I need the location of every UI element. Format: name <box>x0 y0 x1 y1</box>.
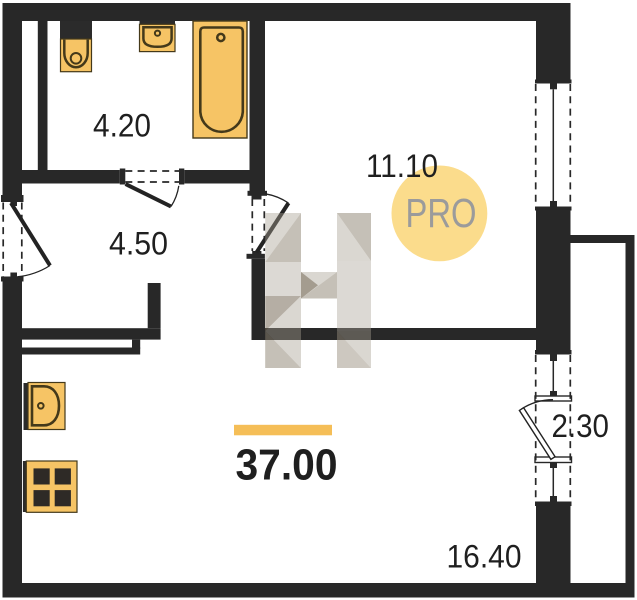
svg-text:11.10: 11.10 <box>366 148 438 184</box>
svg-text:16.40: 16.40 <box>447 539 522 575</box>
svg-text:2.30: 2.30 <box>552 408 610 444</box>
svg-text:37.00: 37.00 <box>236 442 338 490</box>
svg-text:4.50: 4.50 <box>109 226 168 262</box>
svg-text:PRO: PRO <box>406 190 477 236</box>
svg-text:4.20: 4.20 <box>93 108 151 144</box>
